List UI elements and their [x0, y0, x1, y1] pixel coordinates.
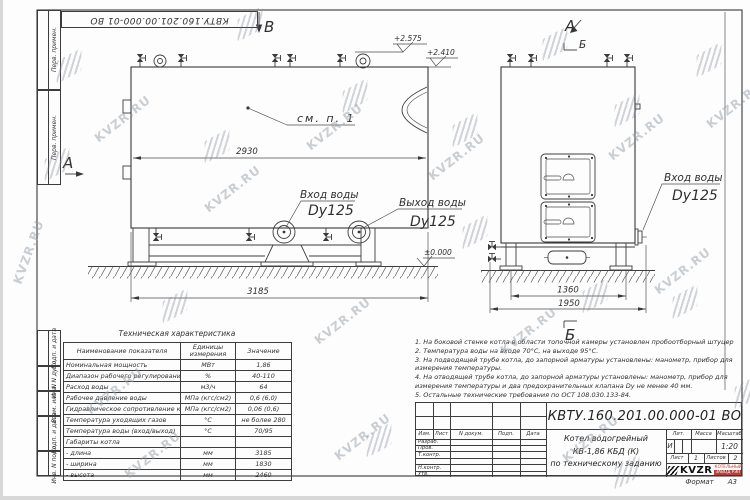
col-data: Дата — [520, 429, 546, 439]
elevation-zero: ±0.000 — [424, 248, 452, 257]
side-view — [481, 54, 655, 283]
company-line2: ЗАВОД РЭП — [714, 470, 741, 475]
dim-1360: 1360 — [557, 286, 579, 296]
document-name: Котел водогрейный КВ-1,86 КБД (К) по тех… — [546, 429, 666, 481]
col-list: Лист — [433, 429, 450, 439]
front-dimensions: 2930 3185 +2.575 +2.410 ±0.000 В — [62, 12, 466, 302]
format-value: А3 — [728, 478, 737, 486]
format-label: Формат А3 — [655, 478, 745, 486]
col-value-header: Значение — [236, 343, 292, 360]
margin-label: Инв. N подл. — [51, 444, 58, 484]
elevation-high: +2.575 — [394, 34, 422, 43]
view-label-a-front: А — [62, 154, 73, 172]
sheet-value: 1 — [688, 453, 704, 463]
scale-value: 1:20 — [716, 439, 743, 453]
inlet-flange-side — [635, 229, 647, 245]
margin-box-perv-primen-1: Перв. примен. — [37, 10, 61, 90]
dim-3185: 3185 — [247, 287, 269, 297]
table-row: Температура воды (вход/выход)°С70/95 — [64, 426, 292, 437]
lit-header: Лит. — [666, 429, 691, 439]
kvzr-logo-mark-icon — [665, 466, 680, 475]
note-line: 4. На отводящей трубе котла, до запорной… — [415, 373, 747, 382]
row-tkontr: Т.контр. — [416, 451, 452, 458]
dim-2930: 2930 — [236, 147, 258, 157]
note-line: 1. На боковой стенке котла в области топ… — [415, 338, 747, 347]
document-name-line2: КВ-1,86 КБД (К) — [546, 446, 666, 459]
row-utv: Утв. — [416, 471, 452, 477]
table-row: Температура уходящих газов°Сне более 280 — [64, 415, 292, 426]
doc-number-main: КВТУ.160.201.00.000-01 ВО — [546, 403, 743, 429]
table-row: - ширинамм1830 — [64, 459, 292, 470]
elevation-top: +2.410 — [427, 48, 455, 57]
inlet-side-label: Вход воды — [664, 172, 723, 184]
tech-table: Наименование показателя Единицы измерени… — [63, 342, 292, 481]
technical-notes: 1. На боковой стенке котла в области топ… — [415, 338, 747, 400]
margin-label: Перв. примен. — [51, 27, 58, 72]
mass-header: Масса — [691, 429, 716, 439]
drawing-sheet: KVZR.RU KVZR.RU KVZR.RU KVZR.RU KVZR.RU … — [3, 0, 750, 496]
table-row: Габариты котла — [64, 437, 292, 448]
ground-hatch-front — [88, 267, 438, 279]
sheets-label: Листов — [704, 453, 728, 463]
side-dimensions: 1360 1950 А Б Б Вход воды Dy125 — [490, 17, 723, 344]
margin-box-inv-podl: Инв. N подл. — [37, 451, 61, 476]
kvzr-logo: KVZR КОТЕЛЬНЫЙ ЗАВОД РЭП — [666, 463, 743, 477]
lower-door — [541, 202, 595, 242]
format-word: Формат — [685, 478, 713, 486]
table-row: Номинальная мощностьМВт1,86 — [64, 360, 292, 371]
table-row: Рабочее давление водыМПа (кгс/см2)0,6 (6… — [64, 393, 292, 404]
table-row: Расход водым3/ч64 — [64, 382, 292, 393]
col-name-header: Наименование показателя — [64, 343, 181, 360]
document-name-line1: Котел водогрейный — [546, 433, 666, 446]
title-block: КВТУ.160.201.00.000-01 ВО Изм. Лист N до… — [415, 402, 742, 476]
table-row: Диапазон рабочего регулирования%40-110 — [64, 371, 292, 382]
sheets-value: 2 — [728, 453, 743, 463]
dim-1950: 1950 — [558, 299, 580, 309]
doc-number-top: КВТУ.160.201.00.000-01 ВО — [90, 15, 229, 25]
front-view — [88, 54, 438, 279]
tech-table-header-row: Наименование показателя Единицы измерени… — [64, 343, 292, 360]
col-izm: Изм. — [416, 429, 433, 439]
tech-table-title: Техническая характеристика — [63, 329, 291, 338]
margin-box-perv-primen-2: Перв. примен. — [37, 90, 61, 185]
table-row: - длинамм3185 — [64, 448, 292, 459]
outlet-front-label: Выход воды — [399, 197, 466, 209]
view-label-b: В — [264, 18, 274, 36]
note-line: 5. Остальные технические требования по О… — [415, 391, 747, 400]
company-name: КОТЕЛЬНЫЙ ЗАВОД РЭП — [714, 465, 741, 474]
inlet-side-size: Dy125 — [672, 188, 718, 204]
inlet-flange-front — [273, 221, 295, 243]
note-line: измерения температуры и два предохраните… — [415, 382, 747, 391]
boiler-body-front — [131, 67, 428, 228]
col-podp: Подп. — [492, 429, 520, 439]
inlet-front-size: Dy125 — [308, 203, 354, 219]
col-units-header: Единицы измерения — [181, 343, 236, 360]
lit-value: И — [666, 439, 674, 453]
note-line: измерения температуры. — [415, 364, 747, 373]
row-nkontr: Н.контр. — [416, 464, 452, 471]
doc-number-top-box: КВТУ.160.201.00.000-01 ВО — [61, 11, 258, 28]
scale-header: Масштаб — [716, 429, 743, 439]
margin-label: Перв. примен. — [51, 115, 58, 160]
kvzr-logo-text: KVZR — [680, 465, 712, 476]
section-b-top: Б — [579, 39, 586, 51]
note-line: 3. На подводящей трубе котла, до запорно… — [415, 356, 747, 365]
outlet-flange-front — [348, 221, 370, 243]
inlet-front-label: Вход воды — [300, 189, 359, 201]
note-line: 2. Температура воды на входе 70°С, на вы… — [415, 347, 747, 356]
upper-door — [541, 154, 595, 199]
view-label-a-side: А — [564, 17, 575, 35]
table-row: - высотамм2460 — [64, 470, 292, 481]
col-doc: N докум. — [450, 429, 492, 439]
outlet-front-size: Dy125 — [410, 214, 456, 230]
ground-hatch-side — [481, 271, 655, 283]
boiler-body-side — [501, 67, 635, 243]
document-name-line3: по техническому заданию — [546, 458, 666, 471]
access-panel — [544, 251, 590, 264]
sheet-label: Лист — [666, 453, 688, 463]
table-row: Гидравлическое сопротивление котлаМПа (к… — [64, 404, 292, 415]
see-note-1: см. п. 1 — [297, 112, 356, 125]
